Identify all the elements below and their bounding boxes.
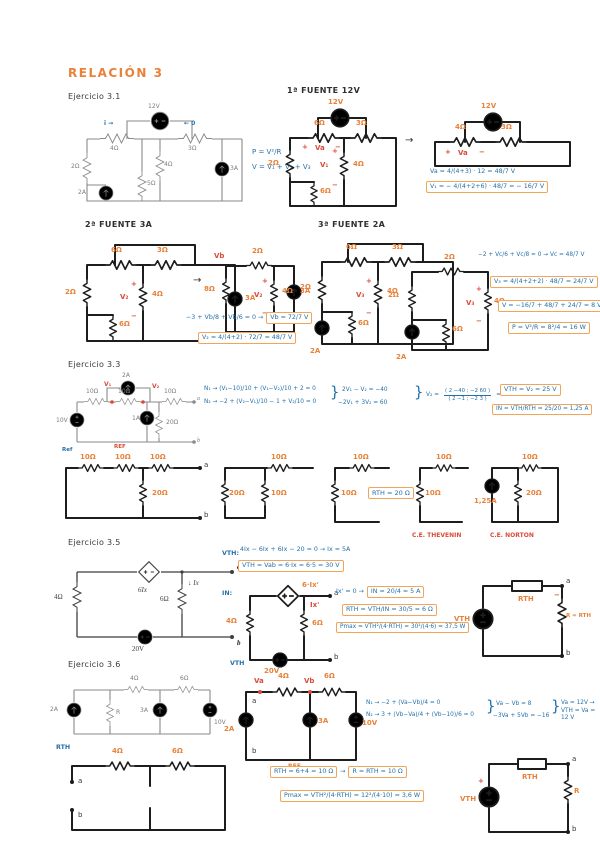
resistor-icon xyxy=(156,412,163,438)
source-label: 2A xyxy=(50,707,58,713)
page-title: RELACIÓN 3 xyxy=(68,66,163,80)
source-label: 12V xyxy=(481,103,496,110)
current-source-icon xyxy=(215,162,229,176)
arrow-icon: → xyxy=(405,136,413,146)
voltage-source-icon xyxy=(70,413,84,427)
printed-circuit-3-5: 4Ω 6Ix 6Ω ↓ Ix 20V a b xyxy=(62,552,252,652)
node-voltage-label: V₁ xyxy=(320,162,328,169)
voltage-source-icon xyxy=(484,113,502,131)
resistor-icon xyxy=(438,268,464,275)
exercise-3-3-label: Ejercicio 3.3 xyxy=(68,360,121,369)
terminal-label: a xyxy=(572,756,576,763)
equation-text: −3 + Vb/8 + Vb/6 = 0 → xyxy=(186,314,263,322)
thevenin-equivalent-circuit: 10Ω 10Ω xyxy=(412,452,472,532)
current-source-icon xyxy=(239,713,253,727)
source-label: 1,25A xyxy=(474,498,497,505)
node-dot xyxy=(308,690,312,694)
source-label: 10V xyxy=(56,418,68,424)
resistor-label: 10Ω xyxy=(425,490,441,497)
dependent-source-icon xyxy=(278,586,299,607)
equation: 4Ix − 6Ix + 6Ix − 20 = 0 → Ix = 5A xyxy=(240,546,350,554)
polarity-plus: + xyxy=(478,778,484,785)
system-equation-1: 2V₁ − V₂ = −40 xyxy=(342,387,388,394)
resistor-icon xyxy=(107,700,114,726)
circuit-wires xyxy=(412,272,488,350)
resistor-label: 6Ω xyxy=(180,676,188,682)
printed-circuit-3-1: 12V i → ← 0 4Ω 3Ω 2Ω 4Ω 5Ω 2A 3A xyxy=(72,105,257,213)
resistor-icon xyxy=(83,153,91,183)
resistor-icon xyxy=(272,688,302,696)
terminal-dot xyxy=(566,762,570,766)
resistor-label: 20Ω xyxy=(152,490,168,497)
printed-circuit-3-3: 2A 10Ω 10Ω 10Ω V₁ V₂ 10V 1A 20Ω a b REF … xyxy=(62,372,202,458)
resistor-icon xyxy=(374,280,381,308)
hand-circuit-3-6-vth-svg xyxy=(230,668,370,772)
terminal-dot xyxy=(192,440,196,444)
result-box: V₂ = 4/(4+2) · 72/7 = 48/7 V xyxy=(198,332,296,344)
resistor-label: 6Ω xyxy=(324,673,335,680)
node-voltage-label: Vb xyxy=(214,253,224,260)
current-source-icon xyxy=(405,325,419,339)
source-label: 3A xyxy=(140,708,148,714)
heading-fuente-3: 3ª FUENTE 2A xyxy=(318,220,385,229)
node-equation-1: N₁ → −2 + (Va−Vb)/4 = 0 xyxy=(366,700,440,707)
node-voltage-label: Va xyxy=(254,678,264,685)
resistor-label: 2Ω xyxy=(300,284,311,291)
node-equation-2: N₂ → 3 + (Vb−Va)/4 + (Vb−10)/6 = 0 xyxy=(366,712,474,719)
voltage-source-icon xyxy=(473,609,492,628)
current-annotation: ← 0 xyxy=(184,121,195,127)
node-equation-1: N₁ → (V₁−10)/10 + (V₁−V₂)/10 + 2 = 0 xyxy=(204,386,316,393)
resistor-label: 3Ω xyxy=(157,247,168,254)
resistor-label: 10Ω xyxy=(80,454,96,461)
system-equation-2: −3Va + 5Vb = −16 xyxy=(493,713,549,720)
resistor-label: 2Ω xyxy=(252,248,263,255)
resistor-icon xyxy=(308,134,340,142)
resistor-label: 10Ω xyxy=(86,389,98,395)
node-voltage-label: V₃ xyxy=(356,292,364,299)
polarity-minus: − xyxy=(476,318,482,325)
resistor-icon xyxy=(246,262,272,269)
terminal-label: a xyxy=(78,778,82,785)
dependent-source-label: 6·Ix' xyxy=(302,582,319,589)
equation-boxed: RTH = VTH/IN = 30/5 = 6 Ω xyxy=(342,604,437,616)
terminal-label: b xyxy=(334,654,338,661)
resistor-icon xyxy=(140,480,147,506)
resistor-icon xyxy=(124,686,148,692)
rth-step-1-svg xyxy=(58,452,208,532)
terminal-label: b xyxy=(78,812,82,819)
vth-final-result: Va = 12V → VTH = Va = 12 V xyxy=(561,700,600,723)
exercise-3-1-label: Ejercicio 3.1 xyxy=(68,92,121,101)
resistor-icon xyxy=(73,582,81,612)
resistor-label: 8Ω xyxy=(204,286,215,293)
arrow-icon: → xyxy=(193,276,201,286)
norton-caption: C.E. NORTON xyxy=(490,532,534,539)
resistor-label: 2Ω xyxy=(388,292,399,299)
equation: Va = 4/(4+3) · 12 = 48/7 V xyxy=(430,168,515,176)
v2-prefix: V₂ = xyxy=(426,392,439,399)
polarity-minus: − xyxy=(554,592,560,599)
resistor-label: 20Ω xyxy=(229,490,245,497)
resistor-label: 4Ω xyxy=(164,162,172,168)
terminal-dot xyxy=(328,658,332,662)
resistor-label: 4Ω xyxy=(54,594,63,601)
node-dot xyxy=(110,400,114,404)
resistor-label: 6Ω xyxy=(320,188,331,195)
exercise-3-5-label: Ejercicio 3.5 xyxy=(68,538,121,547)
resistor-icon xyxy=(311,182,317,206)
resistor-label: 10Ω xyxy=(115,454,131,461)
source-label: 2A xyxy=(224,726,234,733)
vth-section-label: VTH xyxy=(230,660,244,668)
node-voltage-label: Vb xyxy=(304,678,314,685)
resistor-label: 6Ω xyxy=(119,321,130,328)
resistor-icon xyxy=(178,584,186,614)
load-resistor-icon xyxy=(512,581,542,591)
matrix-denominator: ( 2 −1 ; −2 3 ) xyxy=(448,396,486,403)
current-label: Ix' xyxy=(310,602,319,609)
result-box: VTH = Vab = 6·Ix = 6·5 = 30 V xyxy=(238,560,344,572)
source-label: 12V xyxy=(328,99,343,106)
resistor-label: 6Ω xyxy=(111,247,122,254)
resistor-icon xyxy=(417,480,424,506)
matrix-fraction: ( 2 −40 ; −2 60 ) ( 2 −1 ; −2 3 ) xyxy=(444,388,491,403)
current-source-icon xyxy=(67,703,81,717)
thevenin-load-3-6-svg xyxy=(468,748,583,840)
circuit-wires xyxy=(290,118,396,206)
terminal-dot xyxy=(70,780,74,784)
equation: −2 + Vc/6 + Vc/8 = 0 → Vc = 48/7 V xyxy=(478,252,585,259)
result-box: V₁ = − 4/(4+2+6) · 48/7 = − 16/7 V xyxy=(426,181,548,193)
terminal-dot xyxy=(198,466,202,470)
brace: } xyxy=(330,385,340,400)
node-dot xyxy=(258,690,262,694)
node-voltage-label: V₂ xyxy=(152,384,159,390)
current-source-icon xyxy=(153,703,167,717)
terminal-dot xyxy=(230,635,234,639)
equation-boxed: V₃ = 4/(4+2+2) · 48/7 = 24/7 V xyxy=(490,276,598,288)
terminal-label: a xyxy=(252,698,256,705)
resistor-label: 10Ω xyxy=(150,454,166,461)
resistor-label: 4Ω xyxy=(110,146,118,152)
printed-circuit-3-5-svg xyxy=(62,552,252,652)
brace: } xyxy=(414,385,424,400)
resistor-icon xyxy=(432,465,456,471)
result-box: RTH = 6+4 = 10 Ω xyxy=(270,766,337,778)
hand-circuit-3-6-rth: 4Ω 6Ω a b xyxy=(60,752,235,838)
resistor-label: R xyxy=(574,788,579,795)
equation-boxed: V₂ = 4/(4+2) · 72/7 = 48/7 V xyxy=(198,332,296,344)
resistor-icon xyxy=(349,312,356,338)
resistor-label: 3Ω xyxy=(356,120,367,127)
voltage-source-icon xyxy=(349,713,363,727)
resistor-icon xyxy=(301,610,308,636)
result-box: VTH = V₂ = 25 V xyxy=(500,384,561,396)
resistor-label: 10Ω xyxy=(118,389,130,395)
node-dot xyxy=(141,400,145,404)
source-label: 2A xyxy=(310,348,320,355)
heading-fuente-2: 2ª FUENTE 3A xyxy=(85,220,152,229)
hand-circuit-f1-full: 12V 6Ω 3Ω + Va − 2Ω 4Ω + V₁ − 6Ω xyxy=(278,98,408,216)
source-label: 3A xyxy=(318,718,328,725)
vth-section-label: VTH: xyxy=(222,550,239,558)
source-label: 1A xyxy=(132,416,140,422)
circuit-wires xyxy=(72,766,225,830)
hand-circuit-f3-reduced: 2Ω 2Ω + V₃ − 4Ω 6Ω 2A xyxy=(398,246,498,366)
resistor-label: 6Ω xyxy=(358,320,369,327)
result-box: P = V²/R = 8²/4 = 16 W xyxy=(508,322,590,334)
resistor-icon xyxy=(174,686,198,692)
voltage-source-icon xyxy=(138,630,152,644)
resistor-icon xyxy=(83,279,90,307)
result-box: RTH = VTH/IN = 30/5 = 6 Ω xyxy=(342,604,437,616)
hand-circuit-3-5-norton: 6·Ix' Ix' 4Ω 6Ω 20V a b xyxy=(238,580,343,672)
resistor-icon xyxy=(113,465,139,472)
dependent-source-icon xyxy=(139,562,160,583)
load-resistor-icon xyxy=(518,759,546,769)
circuit-wires xyxy=(66,468,200,518)
reference-label: REF xyxy=(114,445,126,451)
resistor-icon xyxy=(558,598,566,628)
resistor-label: RTH xyxy=(518,596,534,603)
resistor-icon xyxy=(318,688,346,695)
resistor-label: 6Ω xyxy=(160,596,169,603)
resistor-label: 2Ω xyxy=(65,289,76,296)
system-equation-2: −2V₁ + 3V₂ = 60 xyxy=(338,400,387,407)
resistor-icon xyxy=(286,150,293,178)
resistor-label: 10Ω xyxy=(353,454,369,461)
thevenin-load-circuit-3-6: VTH RTH R + a b xyxy=(468,748,583,840)
resistor-label: 6Ω xyxy=(452,326,463,333)
circuit-wires xyxy=(77,572,232,637)
resistor-icon xyxy=(223,278,230,304)
equation-boxed: V = −16/7 + 48/7 + 24/7 = 8 V xyxy=(498,300,600,312)
source-label: 12V xyxy=(148,104,160,110)
resistor-label: 4Ω xyxy=(226,618,237,625)
source-label: VTH xyxy=(454,616,470,623)
result-box: V₃ = 4/(4+2+2) · 48/7 = 24/7 V xyxy=(490,276,598,288)
thevenin-equivalent-svg xyxy=(412,452,472,532)
result-box: IN = VTH/RTH = 25/20 = 1,25 A xyxy=(492,404,592,415)
resistor-icon xyxy=(150,261,182,269)
terminal-dot xyxy=(328,594,332,598)
resistor-label: 4Ω xyxy=(152,291,163,298)
result-box: Pmax = VTH²/(4·RTH) = 12²/(4·10) = 3,6 W xyxy=(280,790,424,802)
resistor-icon xyxy=(267,465,293,472)
resistor-icon xyxy=(564,776,571,804)
current-source-icon xyxy=(485,479,499,493)
source-label: 3A xyxy=(230,166,238,172)
in-section-label: IN: xyxy=(222,590,232,598)
resistor-icon xyxy=(515,480,522,506)
equation: −3 + Vb/8 + Vb/6 = 0 → Vb = 72/7 V xyxy=(186,312,312,324)
thevenin-load-3-5-svg xyxy=(462,568,577,663)
hand-circuit-f3-reduced-svg xyxy=(398,246,498,366)
resistor-label: 2Ω xyxy=(71,164,79,170)
node-dot xyxy=(180,570,183,573)
hand-circuit-f1-reduced-svg xyxy=(425,100,580,175)
node-voltage-label: V₂ xyxy=(120,294,128,301)
source-label: 2A xyxy=(396,354,406,361)
terminal-label: b xyxy=(572,826,576,833)
arrow-icon: → xyxy=(340,768,345,776)
terminal-label: b xyxy=(197,438,200,444)
circuit-wires xyxy=(246,692,356,760)
equation: Ix' = 0 → IN = 20/4 = 5 A xyxy=(336,586,424,598)
rth-result: RTH = 20 Ω xyxy=(368,487,414,499)
resistor-label: 6Ω xyxy=(314,120,325,127)
resistor-icon xyxy=(349,465,375,472)
vth-result: VTH = V₂ = 25 V xyxy=(500,384,561,396)
source-label: 10V xyxy=(362,720,377,727)
result-box: IN = 20/4 = 5 A xyxy=(367,586,425,598)
exercise-3-6-label: Ejercicio 3.6 xyxy=(68,660,121,669)
heading-fuente-1: 1ª FUENTE 12V xyxy=(287,86,360,95)
resistor-label: 4Ω xyxy=(278,673,289,680)
polarity-minus: − xyxy=(131,313,137,320)
resistor-icon xyxy=(178,134,212,143)
equation-boxed: P = V²/R = 8²/4 = 16 W xyxy=(508,322,590,334)
node-voltage-label: V₁ xyxy=(104,382,111,388)
node-voltage-label: V₃ xyxy=(466,300,474,307)
resistor-label: 6Ω xyxy=(346,244,357,251)
resistor-label: 6Ω xyxy=(172,748,183,755)
equation-boxed: V₁ = − 4/(4+2+6) · 48/7 = − 16/7 V xyxy=(426,181,548,193)
resistor-icon xyxy=(262,480,269,506)
resistor-label: 6Ω xyxy=(312,620,323,627)
result-box: V = −16/7 + 48/7 + 24/7 = 8 V xyxy=(498,300,600,312)
current-source-icon xyxy=(99,186,113,200)
resistor-label: 4Ω xyxy=(455,124,466,131)
resistor-icon xyxy=(78,465,104,472)
hand-circuit-3-6-rth-svg xyxy=(60,752,235,838)
brace: } xyxy=(486,699,496,714)
terminal-dot xyxy=(192,400,196,404)
polarity-minus: − xyxy=(332,182,338,189)
printed-circuit-3-6: 2A R 4Ω 3A 6Ω 10V xyxy=(62,672,222,742)
equation-boxed: VTH = Vab = 6·Ix = 6·5 = 30 V xyxy=(238,560,344,572)
resistor-label: R = RTH xyxy=(566,614,591,620)
resistor-icon xyxy=(518,465,542,471)
brace: } xyxy=(551,699,561,714)
terminal-label: b xyxy=(566,650,570,657)
norton-equivalent-circuit: 10Ω 20Ω 1,25A xyxy=(478,452,563,532)
equation-boxed: Pmax = VTH²/(4·RTH) = 30²/(4·6) = 37,5 W xyxy=(336,622,469,633)
dependent-source-label: 6Ix xyxy=(138,587,147,594)
resistor-label: 20Ω xyxy=(526,490,542,497)
rth-circuit-step-1: 10Ω 10Ω 10Ω 20Ω a b xyxy=(58,452,208,532)
source-label: 20V xyxy=(132,646,144,653)
hand-circuit-3-5-norton-svg xyxy=(238,580,343,672)
resistor-label: RTH xyxy=(522,774,538,781)
resistor-icon xyxy=(340,258,372,266)
resistor-icon xyxy=(247,610,254,636)
current-source-icon xyxy=(140,411,154,425)
system-equation-1: Va − Vb = 8 xyxy=(496,701,532,708)
terminal-label: b xyxy=(252,748,256,755)
resistor-label: 5Ω xyxy=(147,181,155,187)
terminal-dot xyxy=(70,808,74,812)
polarity-plus: + xyxy=(332,148,338,155)
resistor-label: 10Ω xyxy=(341,490,357,497)
terminal-label: a xyxy=(204,462,208,469)
printed-circuit-3-1-svg xyxy=(72,105,257,213)
resistor-icon xyxy=(148,465,174,472)
thevenin-caption: C.E. THEVENIN xyxy=(412,532,461,539)
resistor-icon xyxy=(139,283,146,311)
resistor-label: R xyxy=(116,710,120,716)
hand-circuit-f2-reduced: Vb 2Ω 8Ω + V₂ − 4Ω 3A xyxy=(216,240,301,340)
resistor-icon xyxy=(165,762,195,770)
resistor-icon xyxy=(271,280,278,306)
terminal-dot xyxy=(230,570,234,574)
resistor-icon xyxy=(105,261,137,269)
resistor-icon xyxy=(332,480,339,506)
voltage-source-icon xyxy=(331,109,349,127)
notes-page: RELACIÓN 3 Ejercicio 3.1 12V i → ← 0 4Ω … xyxy=(0,0,600,848)
source-label: 2A xyxy=(122,373,130,379)
resistor-label: 2Ω xyxy=(444,254,455,261)
voltage-source-icon xyxy=(479,787,498,806)
terminal-label: a xyxy=(197,396,200,402)
rth-results-line: RTH = 6+4 = 10 Ω → R = RTH = 10 Ω xyxy=(270,766,407,778)
polarity-minus: − xyxy=(366,310,372,317)
current-source-icon xyxy=(315,321,329,335)
resistor-icon xyxy=(222,480,229,506)
resistor-label: 3Ω xyxy=(501,124,512,131)
norton-equivalent-svg xyxy=(478,452,563,532)
source-label: 2A xyxy=(78,190,86,196)
rth-section-label: RTH xyxy=(56,744,70,752)
resistor-icon xyxy=(100,134,134,143)
node-equation-2: N₂ → −2 + (V₂−V₁)/10 − 1 + V₂/10 = 0 xyxy=(204,399,316,406)
in-result: IN = VTH/RTH = 25/20 = 1,25 A xyxy=(492,404,592,415)
resistor-icon xyxy=(162,398,186,404)
polarity-plus: + xyxy=(262,278,268,285)
resistor-label: 10Ω xyxy=(271,454,287,461)
resistor-label: 3Ω xyxy=(188,146,196,152)
polarity-plus: + xyxy=(131,281,137,288)
thevenin-load-circuit-3-5: VTH RTH R = RTH − a b xyxy=(462,568,577,663)
terminal-dot xyxy=(560,654,564,658)
source-label: VTH xyxy=(460,796,476,803)
resistor-icon xyxy=(409,286,416,312)
rth-circuit-step-2: 10Ω 20Ω 10Ω xyxy=(215,452,320,532)
terminal-label: b xyxy=(204,512,208,519)
matrix-numerator: ( 2 −40 ; −2 60 ) xyxy=(444,388,491,396)
resistor-label: 4Ω xyxy=(130,676,138,682)
resistor-icon xyxy=(340,152,347,180)
voltage-source-icon xyxy=(273,653,287,667)
resistor-label: 10Ω xyxy=(436,454,452,461)
resistor-label: 4Ω xyxy=(112,748,123,755)
resistor-icon xyxy=(495,138,527,146)
resistor-icon xyxy=(318,276,325,304)
polarity-plus: + xyxy=(302,144,308,151)
hand-circuit-3-6-vth: Va Vb 4Ω 6Ω 2A 3A 10V REF a b xyxy=(230,668,370,772)
current-source-icon xyxy=(303,713,317,727)
resistor-label: 10Ω xyxy=(522,454,538,461)
resistor-icon xyxy=(138,171,146,201)
resistor-label: 20Ω xyxy=(166,420,178,426)
result-box: Vb = 72/7 V xyxy=(266,312,312,324)
resistor-icon xyxy=(110,315,117,341)
resistor-label: 2Ω xyxy=(268,160,279,167)
result-box: RTH = 20 Ω xyxy=(368,487,414,499)
resistor-label: 4Ω xyxy=(353,161,364,168)
resistor-icon xyxy=(485,288,492,314)
